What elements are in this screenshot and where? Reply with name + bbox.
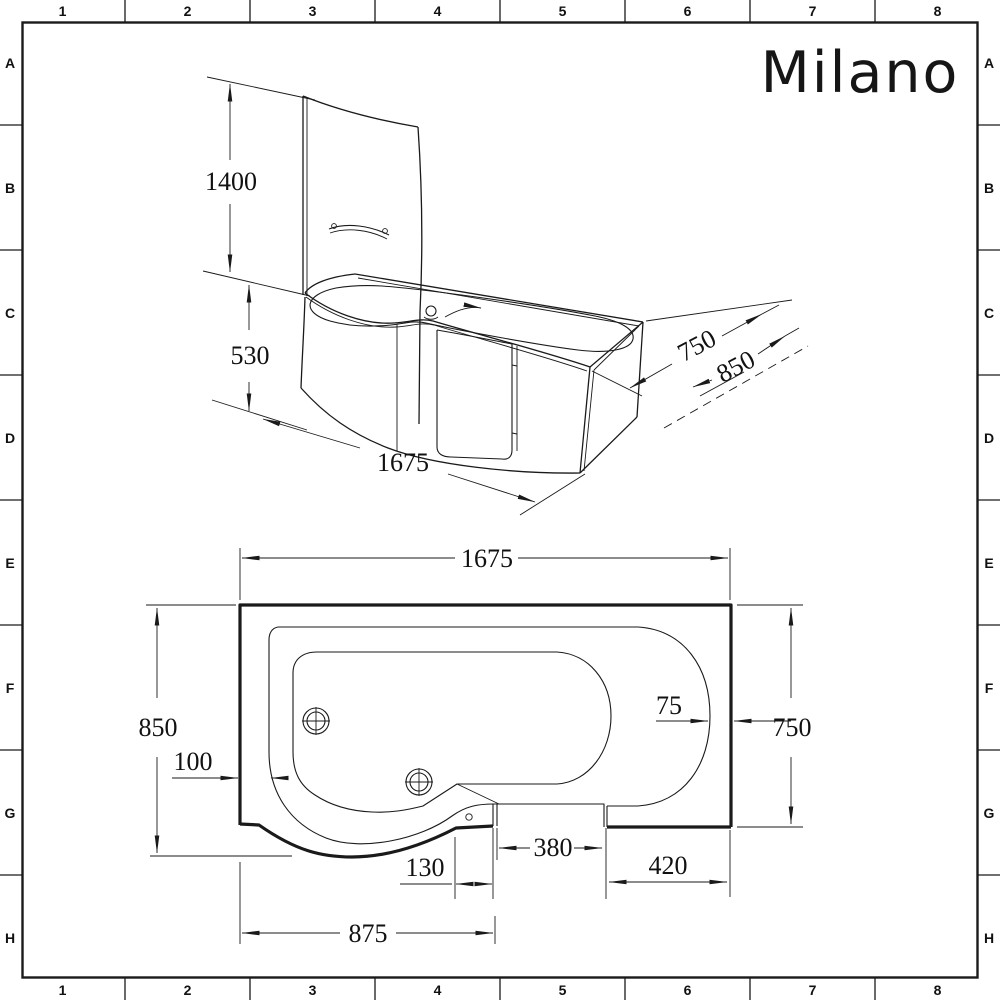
row-label: C <box>5 305 15 321</box>
drawing-sheet: 1 2 3 4 5 6 7 8 1 2 3 4 5 6 7 8 A B C D … <box>0 0 1000 1000</box>
column-label: 6 <box>684 3 692 19</box>
dim-screen-height-label: 1400 <box>205 167 257 196</box>
column-label: 3 <box>309 3 317 19</box>
row-label: H <box>984 930 994 946</box>
dim-plan-end-width-label: 750 <box>773 713 812 742</box>
dim-rim-inset-label: 100 <box>174 747 213 776</box>
column-label: 1 <box>59 3 67 19</box>
plan-outline <box>240 605 731 857</box>
dim-shower-section-label: 875 <box>349 919 388 948</box>
column-label: 2 <box>184 3 192 19</box>
screen-right-edge <box>418 127 422 424</box>
dim-shower-section: 875 <box>240 862 495 948</box>
row-label: E <box>984 555 993 571</box>
faucet <box>424 306 438 319</box>
column-label: 4 <box>434 982 442 998</box>
door-handle <box>466 814 472 820</box>
waste-symbol <box>405 768 433 796</box>
column-label: 7 <box>809 982 817 998</box>
bath-rim <box>305 274 643 371</box>
milano-logo: Milano <box>761 40 960 106</box>
column-label: 8 <box>934 982 942 998</box>
column-label: 1 <box>59 982 67 998</box>
row-label: F <box>6 680 15 696</box>
dim-rim-edge-gap-label: 75 <box>656 691 682 720</box>
row-label: F <box>985 680 994 696</box>
end-panel <box>580 322 643 473</box>
row-label: B <box>5 180 15 196</box>
dim-seat-width-label: 130 <box>406 853 445 882</box>
dim-rim-inset: 100 <box>172 747 283 778</box>
frame-border <box>23 23 978 978</box>
dim-overall-width-iso-label: 850 <box>712 345 760 389</box>
row-label: B <box>984 180 994 196</box>
plan-rim <box>269 627 710 844</box>
dim-bath-height: 530 <box>212 285 307 430</box>
column-label: 7 <box>809 3 817 19</box>
column-label: 5 <box>559 3 567 19</box>
dim-plan-length: 1675 <box>240 544 730 600</box>
row-label: A <box>984 55 994 71</box>
plan-basin <box>293 652 611 812</box>
engineering-drawing: 1 2 3 4 5 6 7 8 1 2 3 4 5 6 7 8 A B C D … <box>0 0 1000 1000</box>
drawing-frame: 1 2 3 4 5 6 7 8 1 2 3 4 5 6 7 8 A B C D … <box>0 0 1000 1000</box>
column-label: 3 <box>309 982 317 998</box>
dim-plan-end-width: 750 <box>737 605 812 827</box>
column-label: 8 <box>934 3 942 19</box>
bath-basin <box>310 286 633 352</box>
dim-bath-height-label: 530 <box>231 341 270 370</box>
dim-plan-overall-width-label: 850 <box>139 713 178 742</box>
plan-door <box>466 804 607 827</box>
row-label: A <box>5 55 15 71</box>
isometric-view: 1400 530 1675 750 <box>203 77 808 515</box>
dim-plan-length-label: 1675 <box>461 544 513 573</box>
row-label: H <box>5 930 15 946</box>
dim-door-opening-label: 380 <box>534 833 573 862</box>
tap-symbol <box>302 707 330 735</box>
frame-tick-marks <box>0 0 1000 1000</box>
row-label: C <box>984 305 994 321</box>
access-door <box>437 330 517 459</box>
dim-end-panel-label: 420 <box>649 851 688 880</box>
dim-seat-width: 130 <box>400 828 493 899</box>
row-label: E <box>5 555 14 571</box>
column-label: 2 <box>184 982 192 998</box>
column-label: 4 <box>434 3 442 19</box>
screen-top-edge <box>303 96 418 127</box>
dim-rim-edge-gap: 75 <box>656 691 791 721</box>
door-swing-arrow <box>445 307 481 317</box>
towel-rail <box>329 224 389 239</box>
row-label: G <box>984 805 995 821</box>
door-hinge-marks <box>512 365 517 434</box>
dim-door-opening: 380 <box>497 828 606 899</box>
dim-end-panel: 420 <box>609 830 730 897</box>
dim-length-iso-label: 1675 <box>377 448 429 477</box>
plan-view: 1675 850 750 75 100 <box>139 544 812 948</box>
dim-screen-height: 1400 <box>203 77 315 296</box>
row-label: D <box>984 430 994 446</box>
column-label: 5 <box>559 982 567 998</box>
row-label: G <box>5 805 16 821</box>
shower-screen <box>303 96 422 424</box>
column-label: 6 <box>684 982 692 998</box>
dim-length-iso: 1675 <box>263 419 585 515</box>
row-label: D <box>5 430 15 446</box>
